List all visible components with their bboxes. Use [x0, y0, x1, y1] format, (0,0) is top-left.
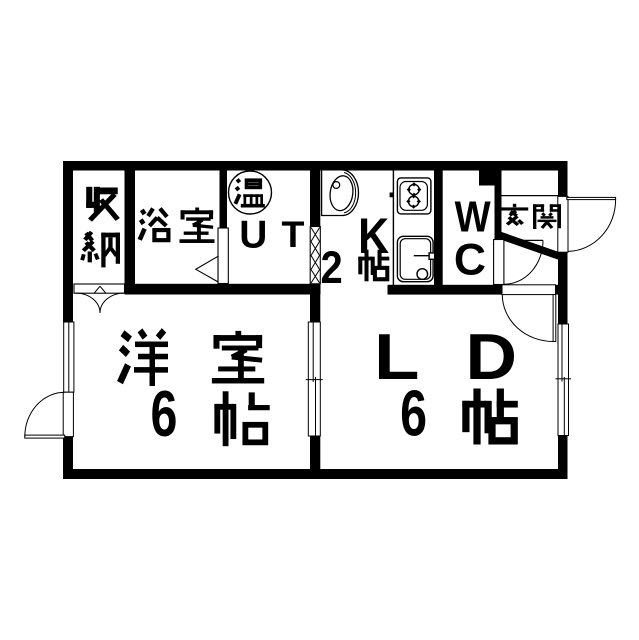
svg-text:U: U	[239, 214, 267, 257]
svg-text:6: 6	[400, 378, 427, 450]
svg-text:D: D	[466, 321, 518, 393]
svg-text:W: W	[455, 192, 491, 241]
svg-text:K: K	[358, 208, 389, 264]
svg-text:T: T	[282, 213, 305, 255]
svg-text:6: 6	[151, 378, 178, 450]
svg-text:2: 2	[321, 242, 343, 293]
svg-text:C: C	[454, 236, 486, 285]
